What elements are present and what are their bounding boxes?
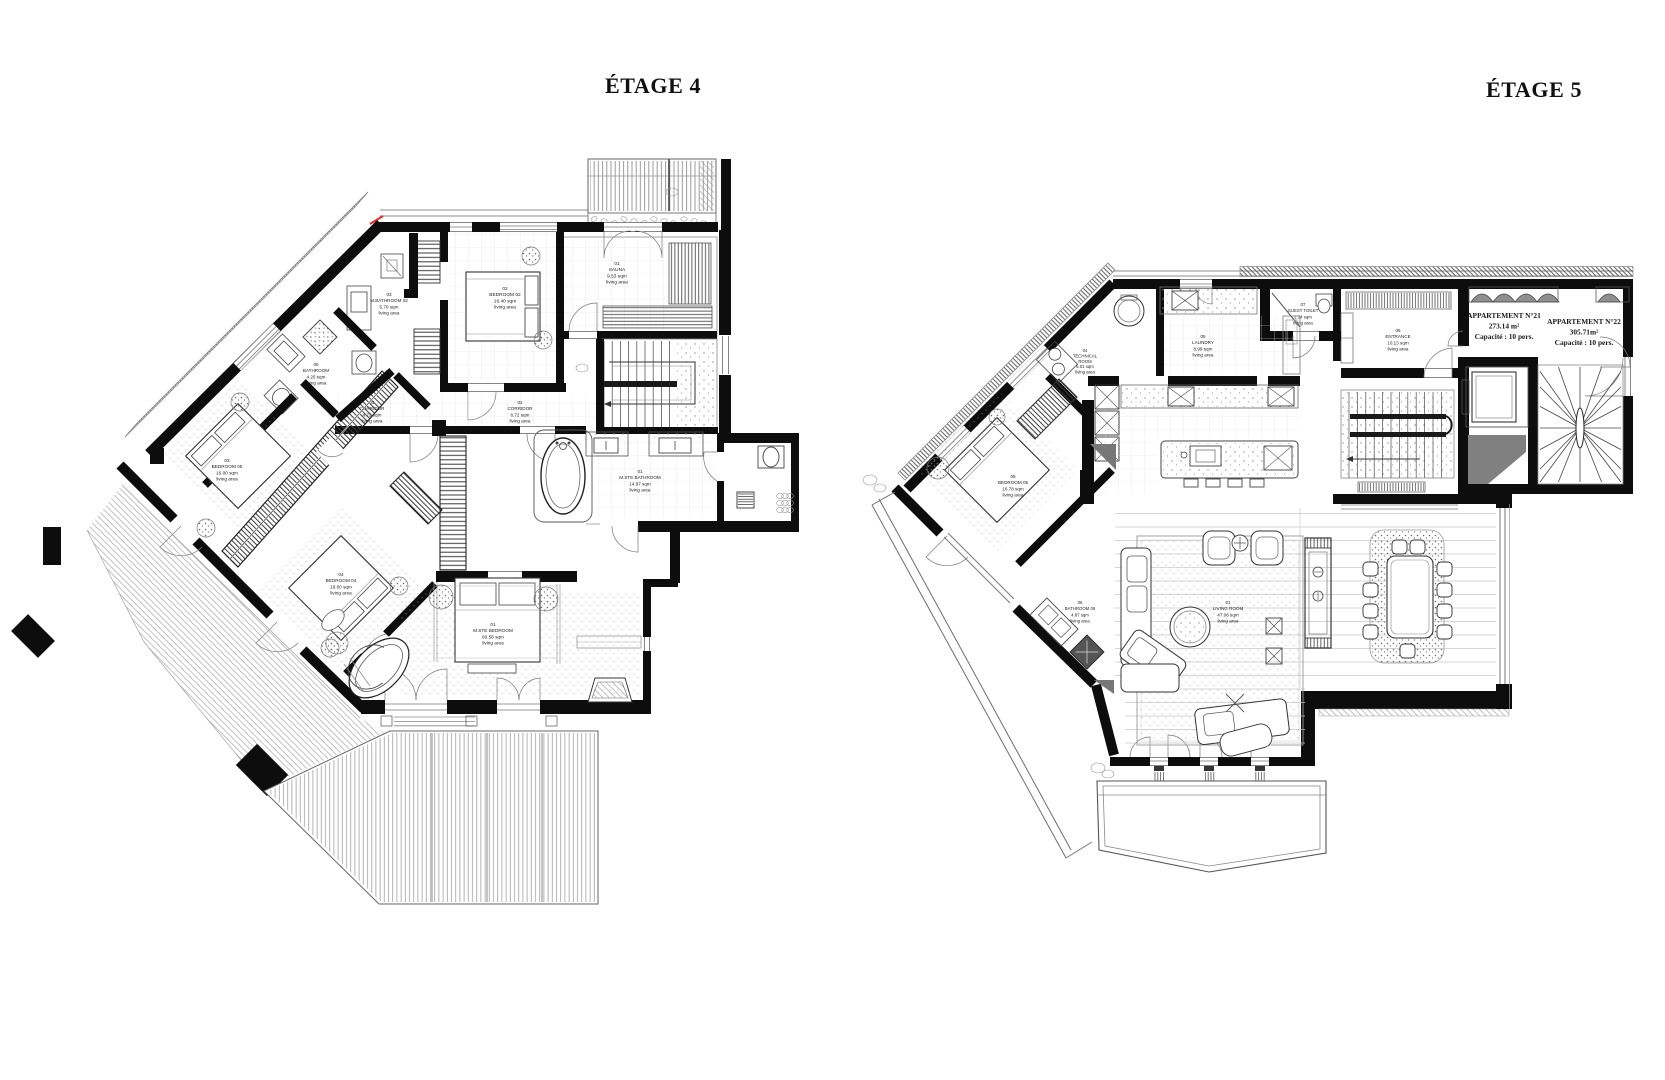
svg-text:ÉTAGE 4: ÉTAGE 4 <box>605 73 701 98</box>
svg-text:ÉTAGE 5: ÉTAGE 5 <box>1486 77 1582 102</box>
